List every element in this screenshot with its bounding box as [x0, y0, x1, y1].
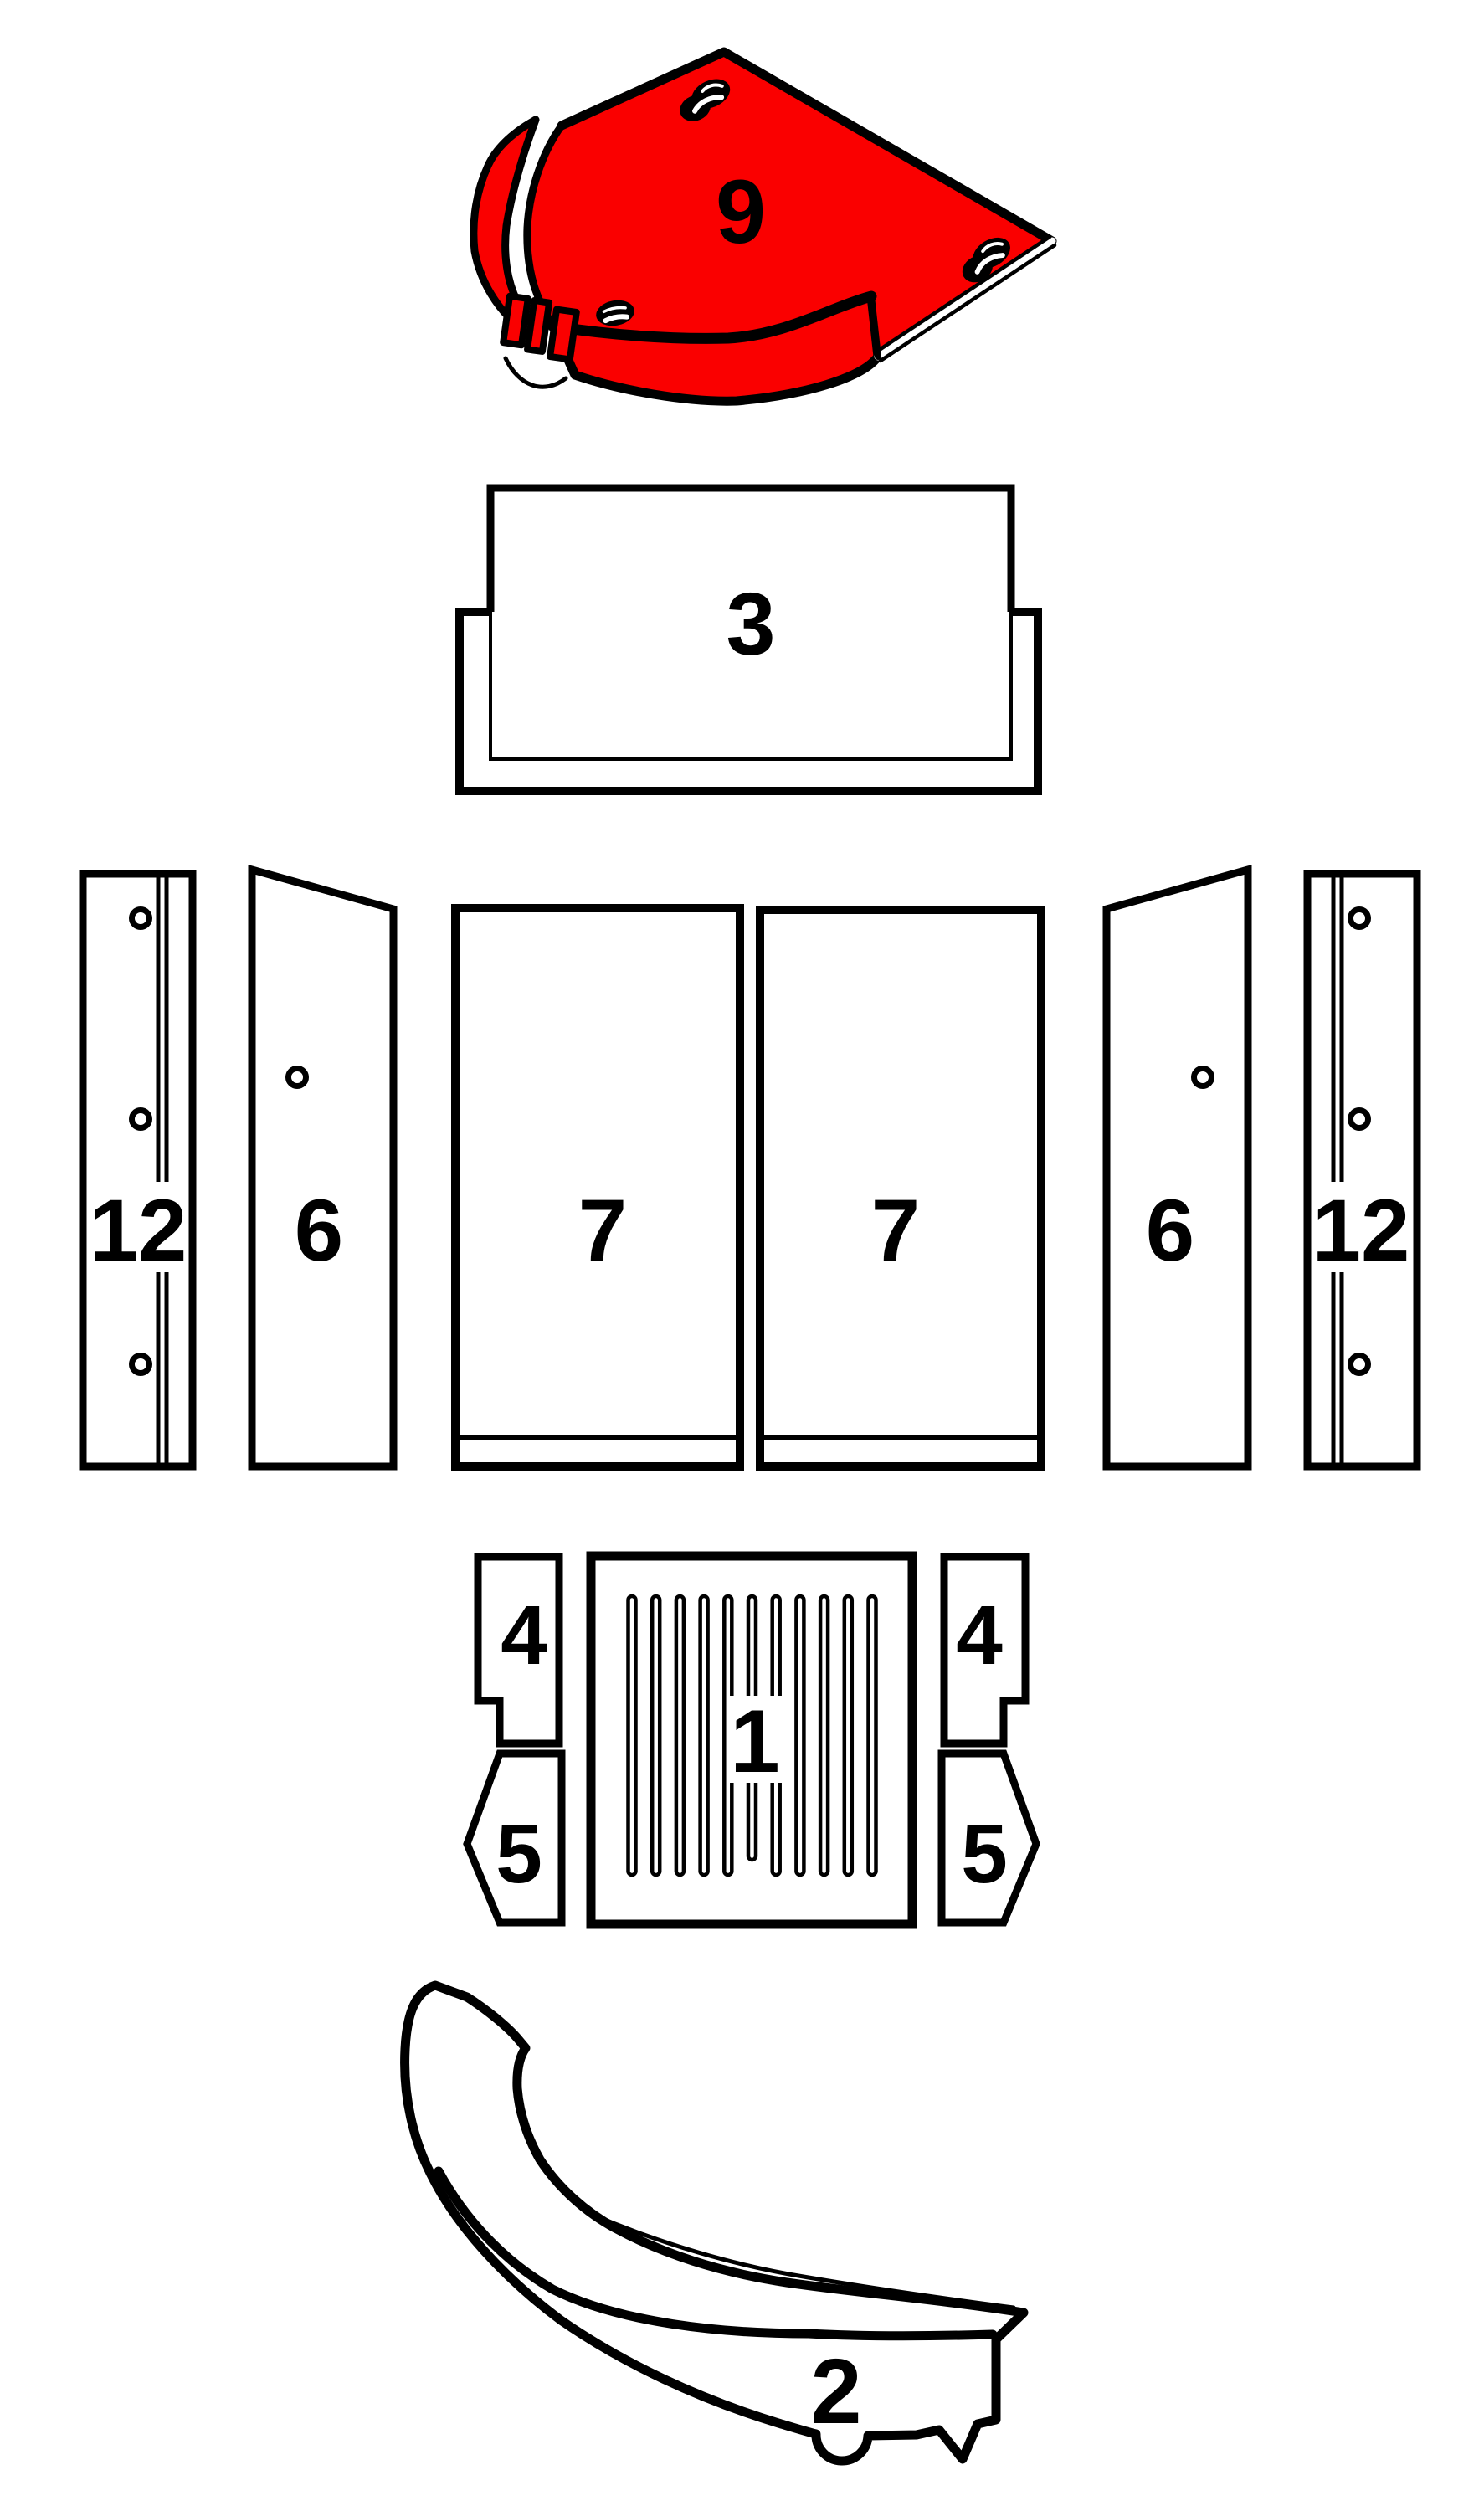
- svg-text:5: 5: [961, 1807, 1008, 1901]
- svg-text:5: 5: [496, 1807, 542, 1901]
- svg-text:6: 6: [1146, 1182, 1194, 1280]
- svg-text:2: 2: [810, 2340, 861, 2443]
- svg-text:6: 6: [295, 1182, 343, 1280]
- svg-text:7: 7: [578, 1182, 627, 1280]
- svg-text:3: 3: [727, 575, 776, 674]
- svg-text:4: 4: [956, 1589, 1003, 1682]
- svg-text:12: 12: [90, 1182, 187, 1280]
- svg-text:12: 12: [1312, 1182, 1410, 1280]
- svg-text:4: 4: [501, 1589, 547, 1682]
- svg-text:1: 1: [730, 1691, 780, 1791]
- svg-text:9: 9: [716, 161, 766, 262]
- svg-text:7: 7: [871, 1182, 920, 1280]
